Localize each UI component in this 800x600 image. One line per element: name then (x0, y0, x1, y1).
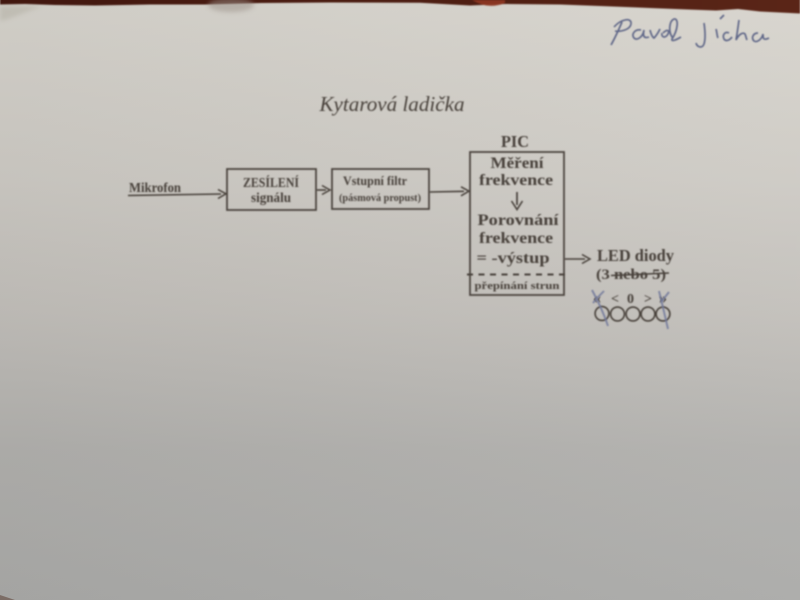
svg-text:ZESÍLENÍ: ZESÍLENÍ (243, 175, 299, 190)
svg-text:= -výstup: = -výstup (477, 250, 550, 267)
svg-text:Kytarová ladička: Kytarová ladička (318, 92, 464, 116)
svg-text:signálu: signálu (251, 190, 291, 205)
svg-text:Vstupní filtr: Vstupní filtr (343, 174, 407, 188)
svg-text:frekvence: frekvence (479, 172, 553, 189)
svg-text:Porovnání: Porovnání (478, 212, 560, 229)
svg-text:Měření: Měření (491, 155, 545, 172)
svg-text:přepínání strun: přepínání strun (475, 280, 560, 292)
svg-text:PIC: PIC (501, 132, 529, 151)
svg-text:frekvence: frekvence (479, 230, 553, 247)
svg-text:LED diody: LED diody (597, 246, 674, 265)
svg-text:0: 0 (627, 292, 634, 307)
svg-text:<: < (611, 292, 619, 307)
svg-text:(pásmová propust): (pásmová propust) (339, 193, 421, 204)
svg-text:>: > (644, 292, 652, 307)
svg-text:Mikrofon: Mikrofon (129, 180, 181, 195)
